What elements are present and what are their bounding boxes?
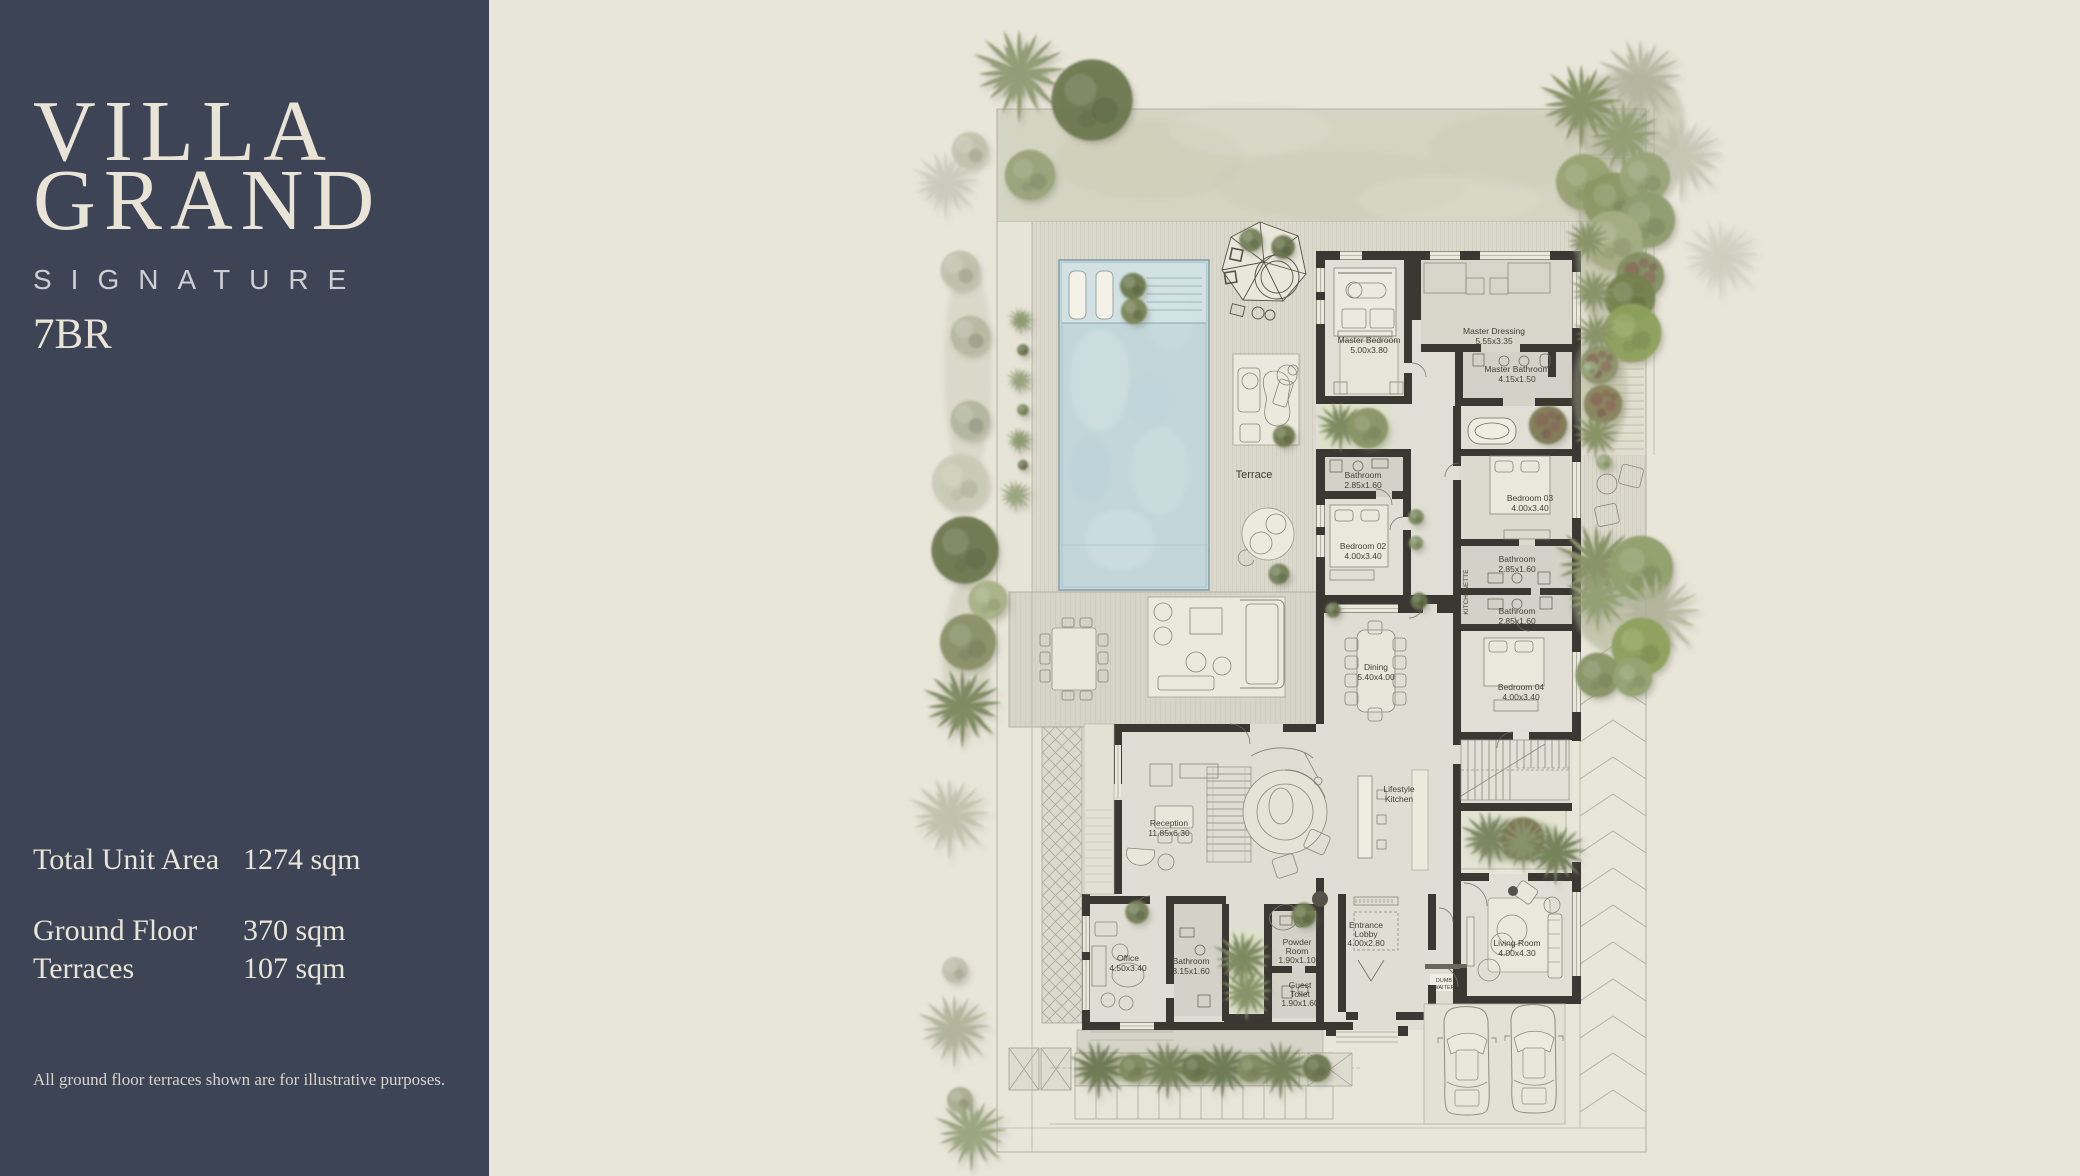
- svg-text:KITCHENETTE: KITCHENETTE: [1463, 569, 1470, 615]
- svg-text:Terrace: Terrace: [1236, 469, 1273, 481]
- svg-text:Bathroom2.85x1.60: Bathroom2.85x1.60: [1498, 606, 1536, 626]
- svg-text:Bathroom3.15x1.60: Bathroom3.15x1.60: [1172, 956, 1210, 976]
- svg-text:Bathroom2.85x1.60: Bathroom2.85x1.60: [1498, 554, 1536, 574]
- svg-text:Living Room4.00x4.30: Living Room4.00x4.30: [1493, 938, 1540, 958]
- svg-text:Bathroom2.85x1.60: Bathroom2.85x1.60: [1344, 470, 1382, 490]
- svg-text:LifestyleKitchen: LifestyleKitchen: [1383, 784, 1414, 804]
- svg-text:Reception11.85x6.30: Reception11.85x6.30: [1148, 818, 1190, 838]
- svg-text:DUMBWAITER: DUMBWAITER: [1433, 978, 1454, 991]
- svg-text:Bedroom 034.00x3.40: Bedroom 034.00x3.40: [1507, 493, 1554, 513]
- svg-text:Bedroom 024.00x3.40: Bedroom 024.00x3.40: [1340, 541, 1387, 561]
- svg-text:Bedroom 044.00x3.40: Bedroom 044.00x3.40: [1498, 682, 1545, 702]
